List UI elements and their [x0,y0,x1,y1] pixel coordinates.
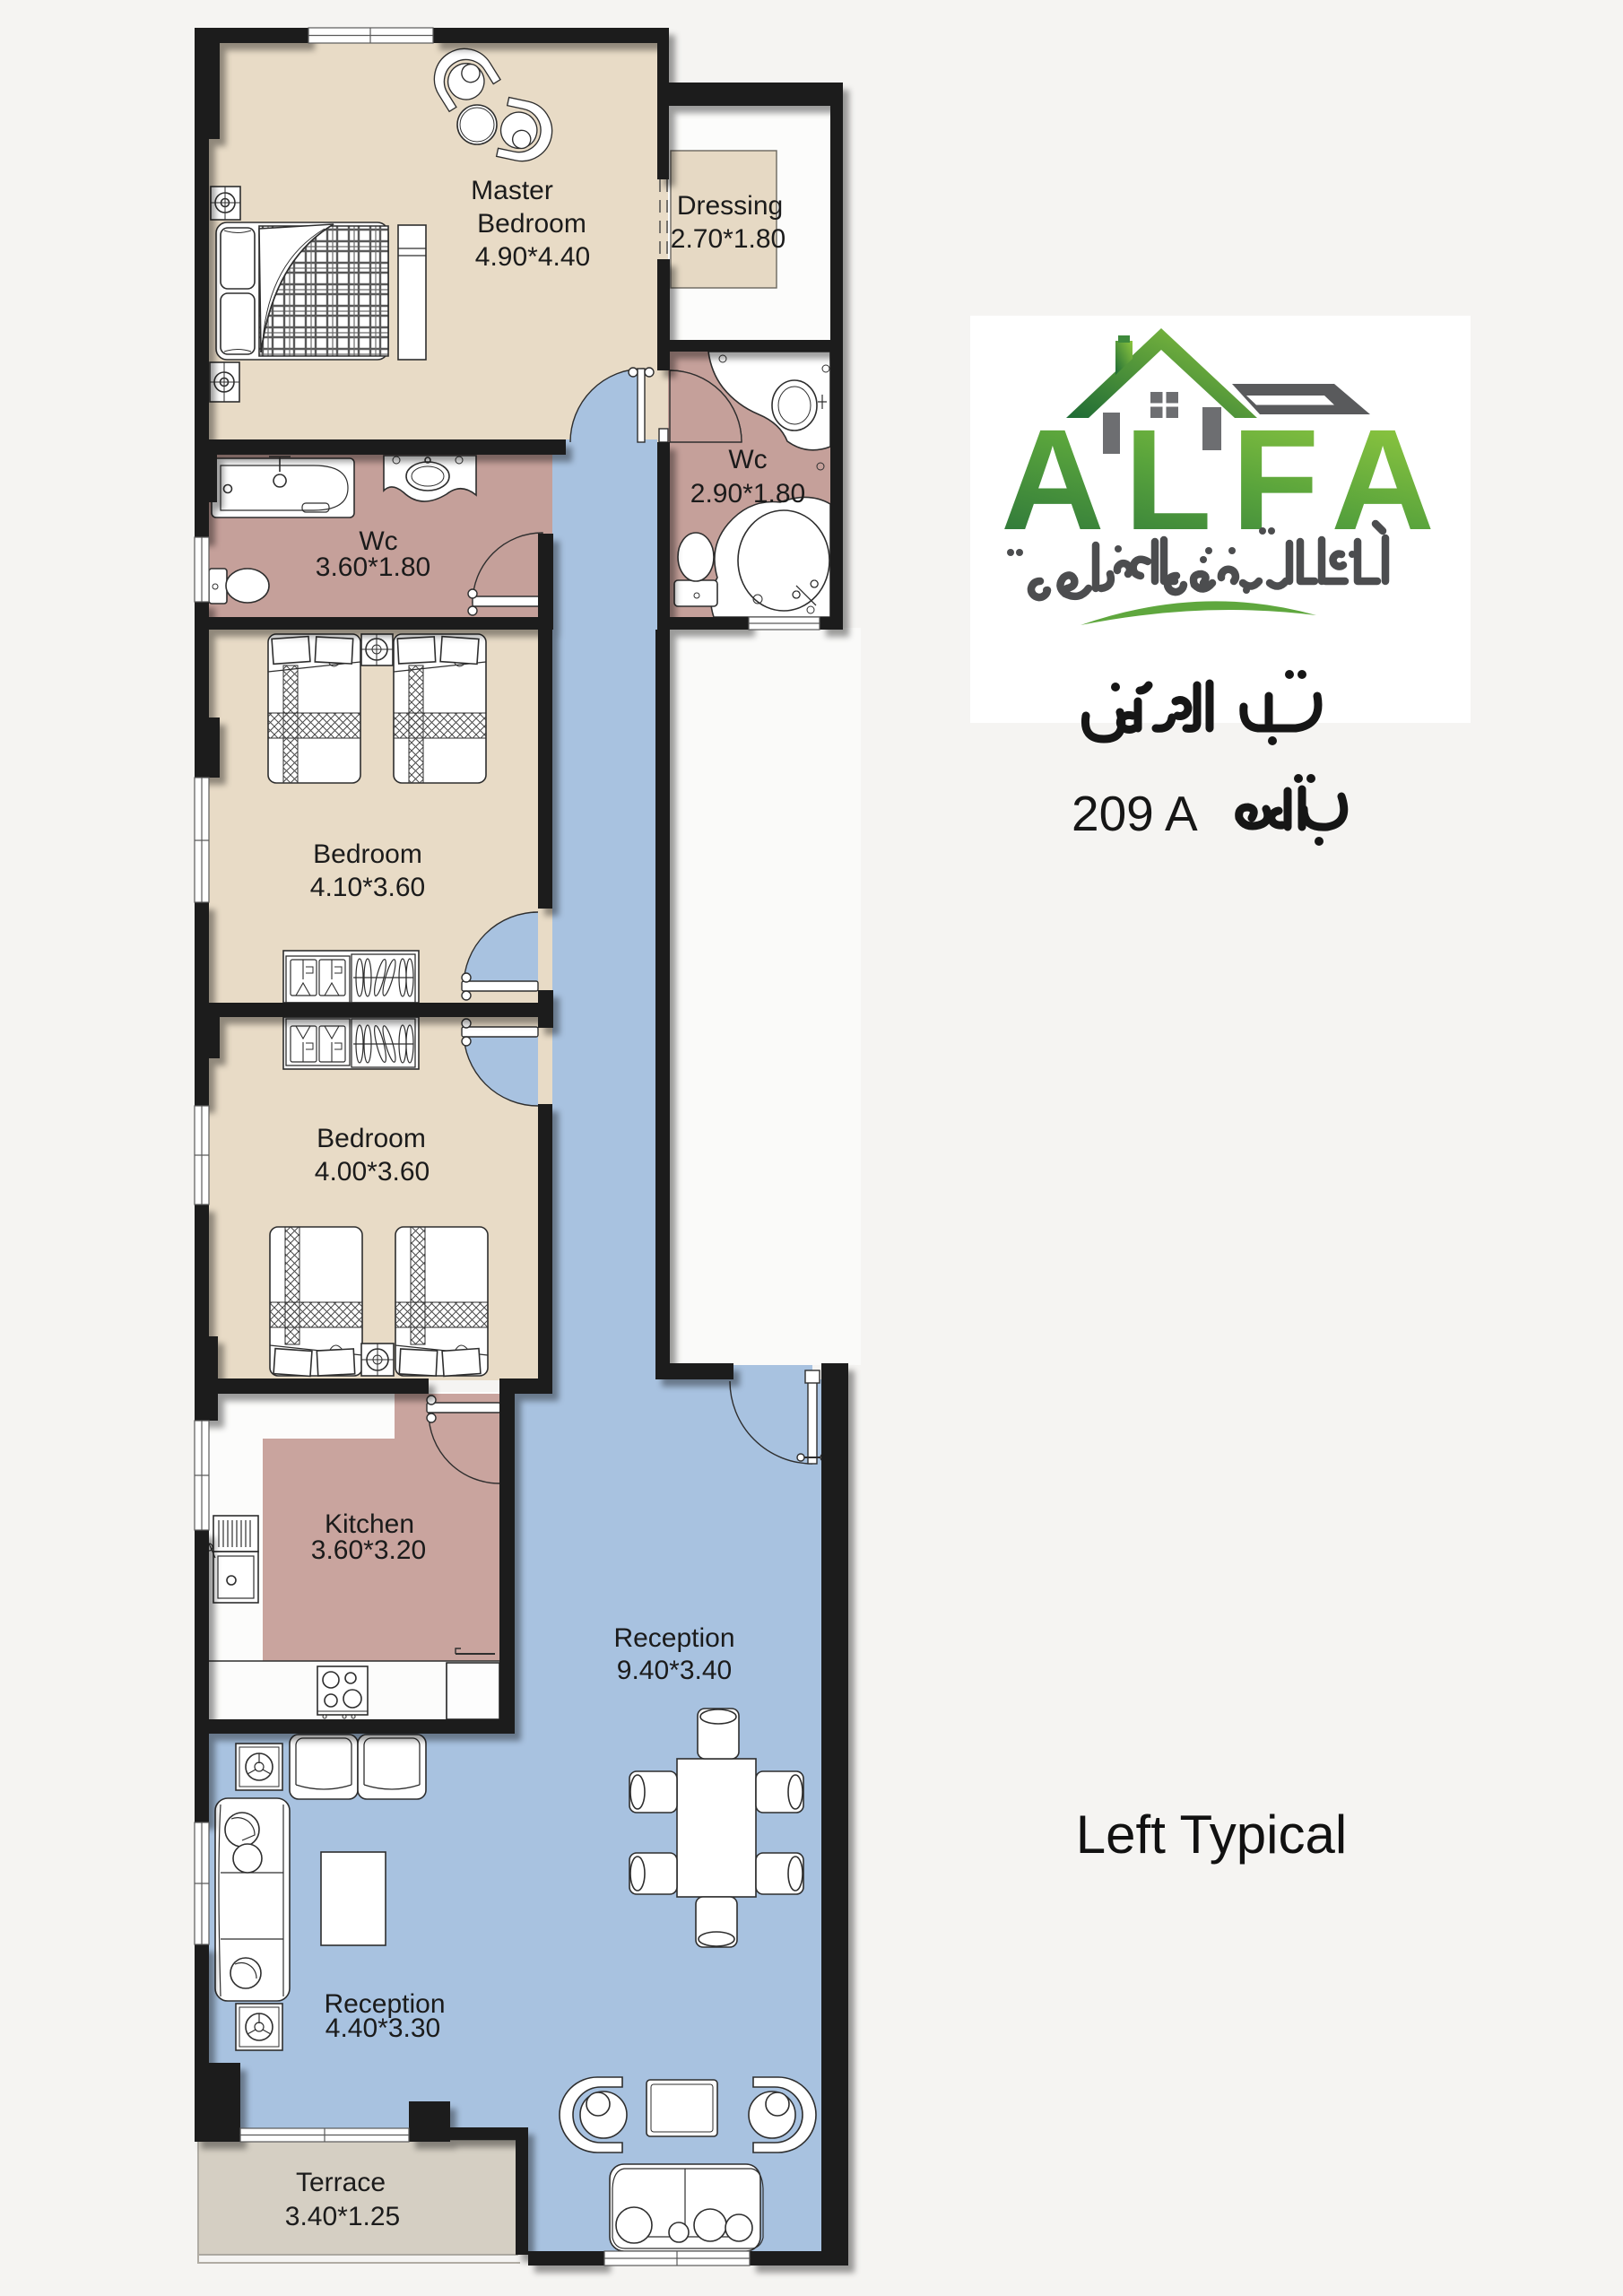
svg-text:3.60*1.80: 3.60*1.80 [316,552,430,582]
svg-text:4.00*3.60: 4.00*3.60 [315,1157,430,1187]
svg-text:209 A: 209 A [1072,786,1198,841]
svg-text:Bedroom: Bedroom [317,1124,426,1153]
svg-text:Dressing: Dressing [677,191,783,221]
svg-text:Bedroom: Bedroom [313,839,422,869]
svg-text:9.40*3.40: 9.40*3.40 [617,1656,732,1685]
svg-text:3.40*1.25: 3.40*1.25 [285,2202,400,2231]
svg-text:2.70*1.80: 2.70*1.80 [671,224,785,254]
svg-text:3.60*3.20: 3.60*3.20 [311,1535,426,1565]
svg-text:Wc: Wc [728,445,767,474]
svg-text:4.90*4.40: 4.90*4.40 [475,242,590,272]
svg-text:Left Typical: Left Typical [1076,1805,1347,1865]
svg-text:Terrace: Terrace [296,2168,386,2197]
svg-text:Bedroom: Bedroom [477,209,586,239]
svg-text:2.90*1.80: 2.90*1.80 [690,479,805,509]
svg-text:4.40*3.30: 4.40*3.30 [325,2013,440,2043]
svg-text:Master: Master [471,176,553,205]
svg-text:4.10*3.60: 4.10*3.60 [310,873,425,902]
svg-text:Reception: Reception [613,1623,734,1653]
